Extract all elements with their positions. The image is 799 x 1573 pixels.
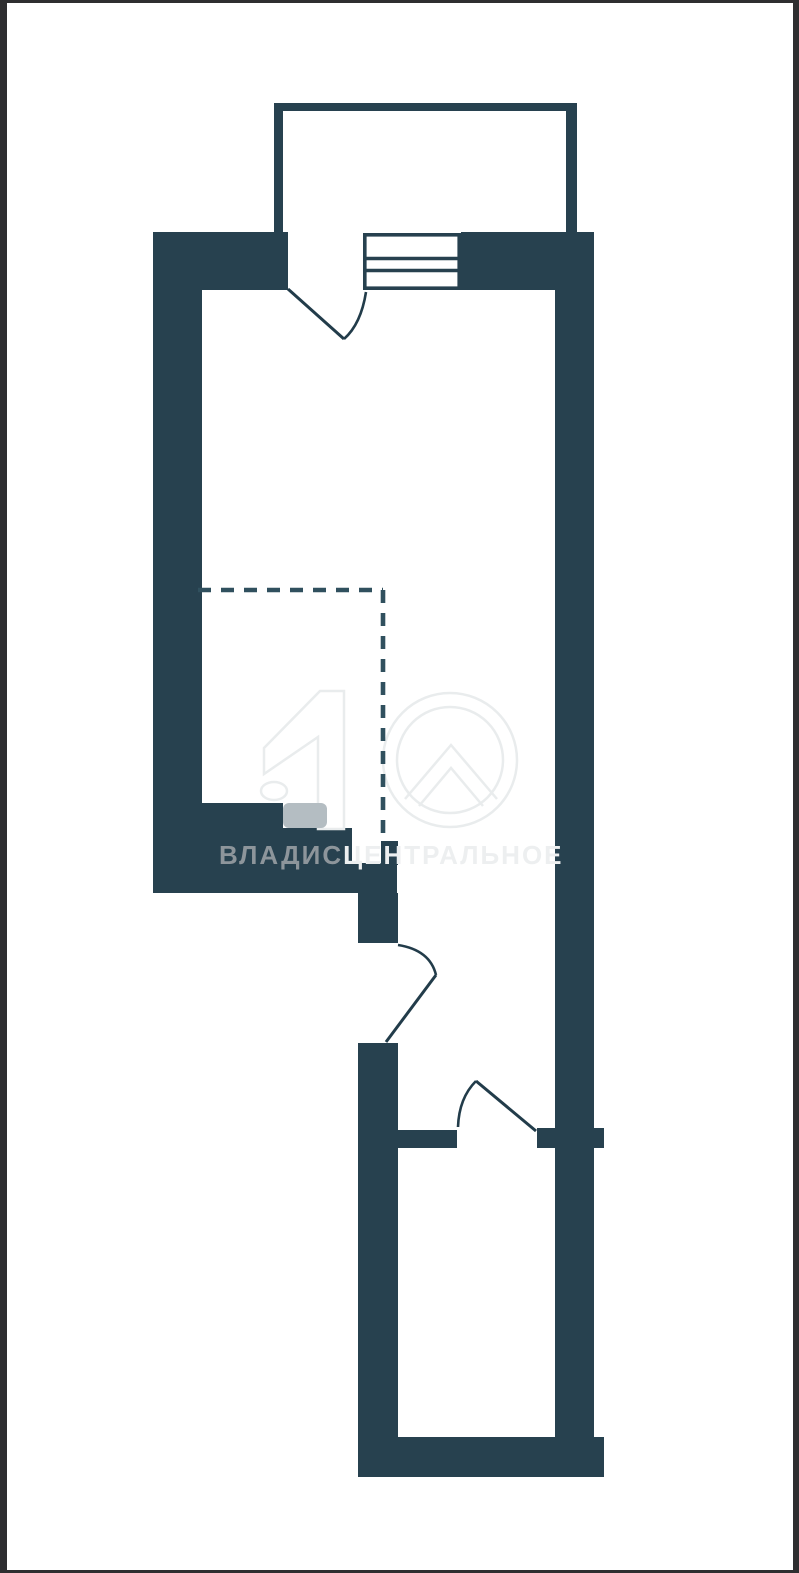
interior-door-1-swing-icon bbox=[386, 945, 436, 1042]
watermark-text-primary: ВЛАДИС bbox=[219, 840, 343, 870]
watermark-text-secondary: ЦЕНТРАЛЬНОЕ bbox=[343, 840, 563, 870]
watermark-text: ВЛАДИСЦЕНТРАЛЬНОЕ bbox=[219, 840, 564, 870]
window-icon bbox=[364, 235, 461, 288]
interior-door-2-swing-icon bbox=[458, 1081, 536, 1131]
balcony-door-swing-icon bbox=[288, 289, 366, 339]
watermark-logo-square bbox=[283, 803, 327, 828]
floor-plan-symbols: ВЛАДИСЦЕНТРАЛЬНОЕ bbox=[0, 0, 799, 1573]
